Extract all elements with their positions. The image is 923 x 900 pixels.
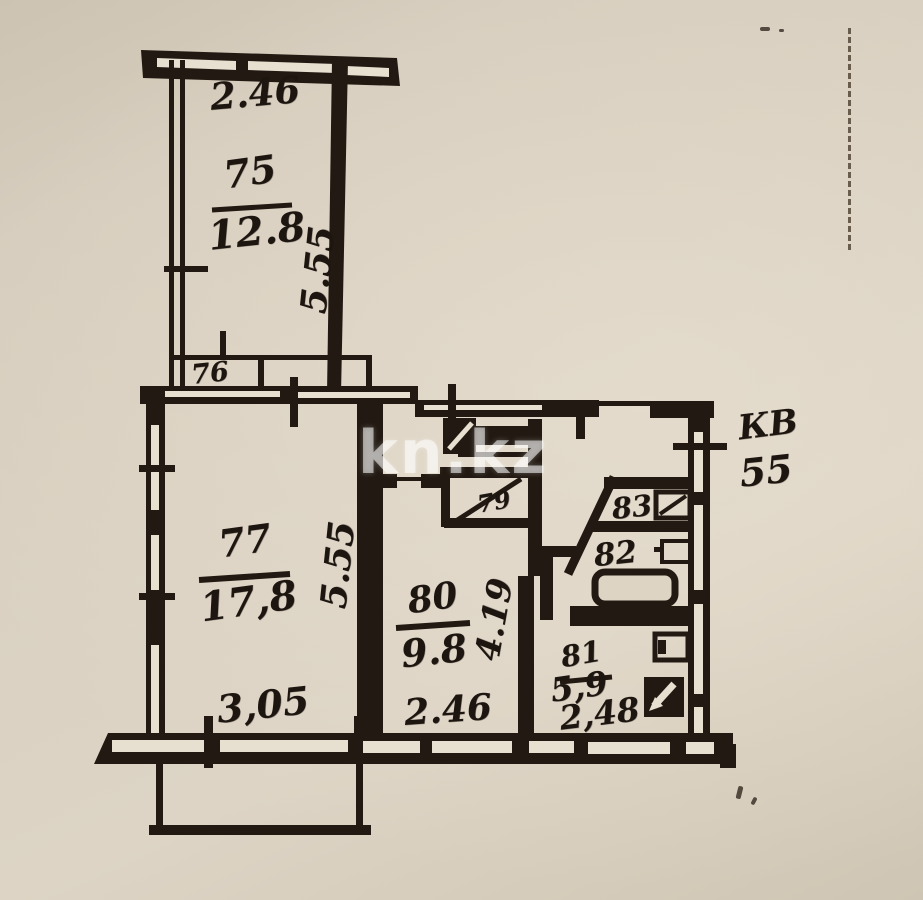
room-80-area: 9.8 [396,628,472,673]
bathroom-82-door-symbol [662,541,690,562]
room-75-number: 75 [213,148,288,195]
bath-kitchen-wall [570,606,690,626]
bathroom-82-number: 82 [587,536,645,573]
room-75-area: 12.8 [206,207,305,257]
dim-room75-width: 2.46 [199,70,312,116]
stray-mark [779,29,784,32]
scanned-floor-plan-photo: 2.46 75 12.8 5.55 76 77 17,8 5.55 3,05 8… [0,0,923,900]
entrance-door-opening [597,401,652,406]
paper-crease-dashed-line [848,28,851,250]
left-outer-wall [139,388,175,762]
kitchen-81-fixtures [644,634,688,717]
site-watermark: kn.kz [358,418,558,488]
balcony-outline [149,756,371,835]
bathtub-symbol [595,572,675,604]
dim-room80-width: 2.46 [392,688,504,732]
closet-76-number: 76 [184,357,237,389]
apartment-label-prefix: КВ [731,404,805,446]
wc-83-number: 83 [606,490,659,524]
stray-mark [760,27,770,31]
room-77-number: 77 [208,517,283,564]
closet-79-number: 79 [470,486,517,517]
dim-room77-width: 3,05 [206,680,319,729]
room-80-number: 80 [398,576,467,621]
